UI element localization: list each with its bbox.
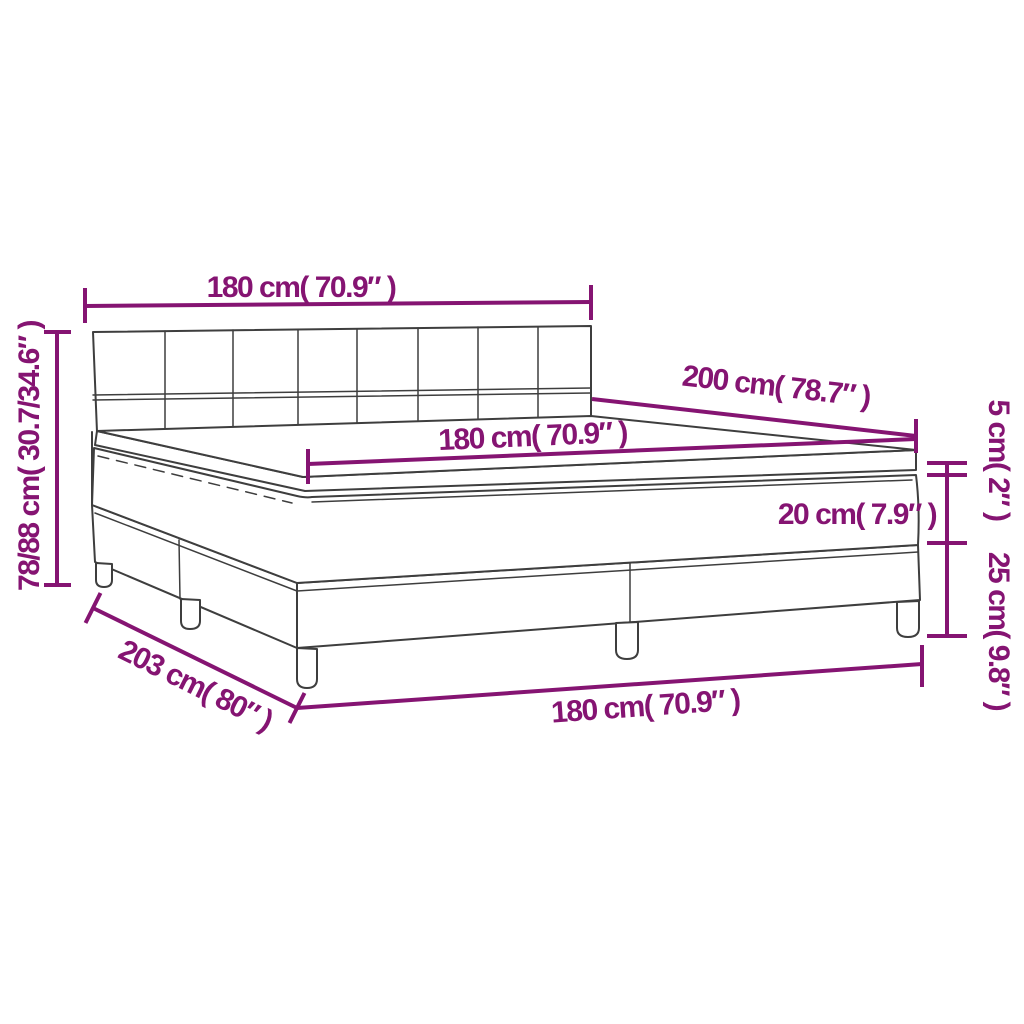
leg (96, 563, 112, 587)
dim-overall-height: 78/88 cm( 30.7/34.6″ ) (13, 321, 71, 591)
leg (297, 648, 317, 688)
leg (616, 622, 638, 659)
product-dimension-diagram: 180 cm( 70.9″ ) 78/88 cm( 30.7/34.6″ ) 2… (0, 0, 1024, 1024)
dimension-label: 78/88 cm( 30.7/34.6″ ) (13, 321, 46, 591)
dim-bed-width: 180 cm( 70.9″ ) (297, 645, 922, 730)
dim-base-height-label: 25 cm( 9.8″ ) (982, 552, 1015, 711)
leg (181, 599, 200, 629)
dimension-label: 180 cm( 70.9″ ) (207, 271, 396, 304)
dim-right-height-stack: 5 cm( 2″ ) 25 cm( 9.8″ ) (927, 399, 1015, 710)
box-spring-bed-diagram: 180 cm( 70.9″ ) 78/88 cm( 30.7/34.6″ ) 2… (0, 0, 1024, 1024)
dim-mattress-thickness-label: 20 cm( 7.9″ ) (778, 498, 937, 531)
dimension-tick (86, 593, 101, 623)
dimension-label: 200 cm( 78.7″ ) (680, 359, 872, 413)
dim-headboard-width: 180 cm( 70.9″ ) (85, 271, 591, 323)
dimension-label: 180 cm( 70.9″ ) (550, 683, 741, 729)
dim-topper-thickness-label: 5 cm( 2″ ) (982, 399, 1015, 521)
base-panel-seam (179, 540, 180, 599)
headboard (93, 326, 591, 432)
leg (897, 601, 919, 637)
